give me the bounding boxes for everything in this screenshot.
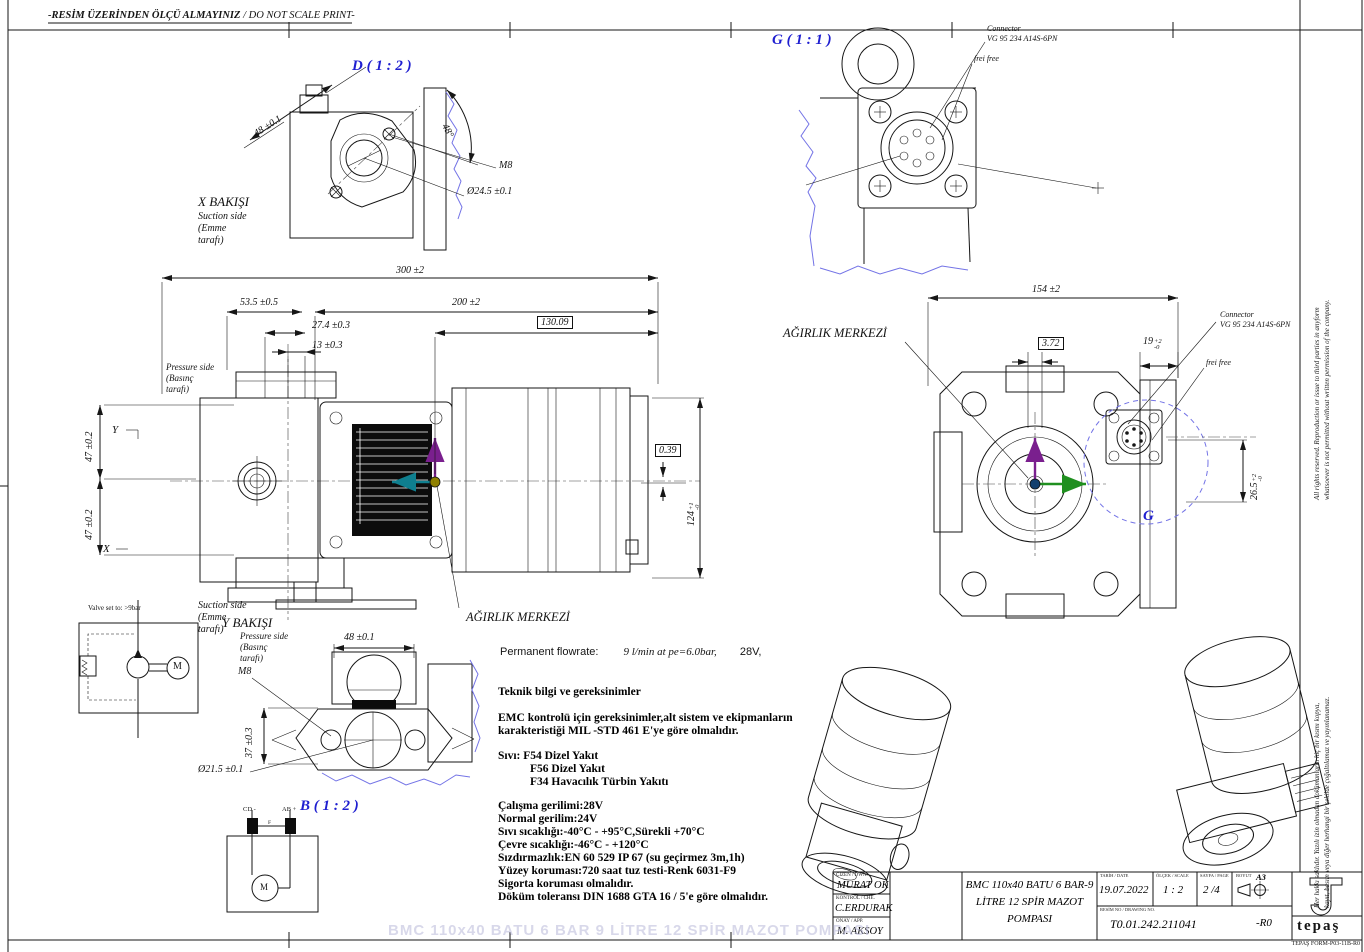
flowrate-voltage: 28V, bbox=[740, 646, 762, 658]
drawing-sheet: -RESİM ÜZERİNDEN ÖLÇÜ ALMAYINIZ / DO NOT… bbox=[0, 0, 1364, 952]
iso-view-left bbox=[786, 657, 957, 907]
date-label: TARİH / DATE bbox=[1100, 873, 1128, 878]
no-scale-note-en: / DO NOT SCALE PRINT- bbox=[240, 10, 354, 21]
drawing-linework bbox=[0, 0, 1364, 952]
drawn-by-label: ÇİZEN / DWN. bbox=[836, 873, 868, 878]
suction-side-1: Suction side bbox=[198, 600, 247, 611]
detail-g-linework bbox=[799, 28, 1104, 274]
spec-line: Sıvı sıcaklığı:-40°C - +95°C,Sürekli +70… bbox=[498, 826, 705, 838]
margin-note-en-1: All rights reserved. Reproduction or iss… bbox=[1313, 307, 1321, 500]
cg-label-front: AĞIRLIK MERKEZİ bbox=[466, 610, 570, 625]
hydraulic-motor-label: M bbox=[173, 661, 182, 672]
connector-label-1: Connector bbox=[1220, 310, 1254, 319]
page-value: 2 /4 bbox=[1203, 884, 1220, 896]
dim-48-y: 48 ±0.1 bbox=[344, 632, 375, 643]
electric-motor-label: M bbox=[260, 882, 268, 892]
cg-label-right: AĞIRLIK MERKEZİ bbox=[783, 326, 887, 341]
detail-ref-g: G bbox=[1143, 508, 1154, 525]
spec-line: Yüzey koruması:720 saat tuz testi-Renk 6… bbox=[498, 865, 736, 877]
axis-y-label: Y bbox=[112, 424, 118, 436]
margin-note-tr-1: Her hakkı saklıdır. Yazılı izin olmadan … bbox=[1313, 703, 1321, 908]
title-block-grid bbox=[833, 872, 1362, 940]
spec-line: Sigorta koruması olmalıdır. bbox=[498, 878, 633, 890]
dim-53: 53.5 ±0.5 bbox=[240, 297, 278, 308]
watermark-text: BMC 110x40 BATU 6 BAR 9 LİTRE 12 SPİR MA… bbox=[388, 922, 870, 939]
revision-value: -R0 bbox=[1256, 917, 1272, 929]
dim-47b: 47 ±0.2 bbox=[84, 510, 95, 541]
dim-47a: 47 ±0.2 bbox=[84, 432, 95, 463]
specs-emc-1: EMC kontrolü için gereksinimler,alt sist… bbox=[498, 712, 793, 724]
size-label: BOYUT bbox=[1236, 873, 1252, 878]
dim-bore-y: Ø21.5 ±0.1 bbox=[198, 764, 243, 775]
drawn-by-value: MURAT OK bbox=[837, 880, 889, 891]
scale-label: ÖLÇEK / SCALE bbox=[1156, 873, 1189, 878]
dim-m8-y: M8 bbox=[238, 666, 251, 677]
form-number: TEPAŞ FORM-P03-11B-R0 bbox=[1202, 941, 1360, 947]
page-label: SAYFA / PAGE bbox=[1200, 873, 1229, 878]
scale-value: 1 : 2 bbox=[1163, 884, 1183, 896]
dim-37: 37 ±0.3 bbox=[244, 728, 255, 759]
margin-note-en-2: whatsoever is not permitted without writ… bbox=[1323, 300, 1331, 500]
date-value: 19.07.2022 bbox=[1099, 884, 1149, 896]
connector-label-g2: VG 95 234 A14S-6PN bbox=[987, 34, 1057, 43]
y-view-sub3: tarafı) bbox=[240, 653, 263, 663]
dim-19: 19+2-0 bbox=[1143, 336, 1162, 351]
checked-by-label: KONTROL / CHE. bbox=[836, 896, 875, 901]
dim-m8-d: M8 bbox=[499, 160, 512, 171]
flowrate-label: Permanent flowrate: bbox=[500, 646, 598, 658]
detail-d-title: D ( 1 : 2 ) bbox=[352, 58, 412, 75]
pressure-side-1: Pressure side bbox=[166, 362, 214, 372]
iso-view-right bbox=[1137, 627, 1337, 873]
frei-free-label-right: frei free bbox=[1206, 358, 1231, 367]
x-view-sub2: (Emme bbox=[198, 223, 226, 234]
no-scale-note: -RESİM ÜZERİNDEN ÖLÇÜ ALMAYINIZ / DO NOT… bbox=[48, 10, 355, 21]
flowrate-value: 9 l/min at pe=6.0bar, bbox=[624, 646, 717, 658]
dim-cg-y: 0.39 bbox=[655, 444, 681, 457]
terminal-neg-label: CD - bbox=[243, 806, 256, 813]
pressure-side-2: (Basınç bbox=[166, 373, 194, 383]
connector-label-g1: Connector bbox=[987, 24, 1021, 33]
pressure-side-3: tarafı) bbox=[166, 384, 189, 394]
spec-line: Çevre sıcaklığı:-46°C - +120°C bbox=[498, 839, 649, 851]
dim-265: 26.5+2-0 bbox=[1249, 474, 1264, 500]
x-view-title: X BAKIŞI bbox=[198, 194, 249, 210]
dim-372: 3.72 bbox=[1038, 337, 1064, 350]
dim-124: 124+1-0 bbox=[686, 502, 701, 526]
spec-line: Normal gerilim:24V bbox=[498, 813, 597, 825]
detail-d-linework bbox=[244, 67, 496, 250]
y-view-linework bbox=[250, 644, 480, 785]
y-view-sub1: Pressure side bbox=[240, 631, 288, 641]
terminal-pos-label: AB + bbox=[282, 806, 296, 813]
no-scale-note-tr: -RESİM ÜZERİNDEN ÖLÇÜ ALMAYINIZ bbox=[48, 10, 240, 21]
fuse-label: F bbox=[268, 820, 271, 826]
specs-fluid-0: Sıvı: F54 Dizel Yakıt bbox=[498, 750, 598, 762]
dim-13: 13 ±0.3 bbox=[312, 340, 343, 351]
dim-300: 300 ±2 bbox=[396, 265, 424, 276]
tepas-logo-text: tepaş bbox=[1297, 918, 1340, 935]
frei-free-label-g: frei free bbox=[974, 54, 999, 63]
drawing-title-2: LİTRE 12 SPİR MAZOT bbox=[962, 896, 1097, 908]
checked-by-value: C.ERDURAK bbox=[835, 903, 892, 914]
spec-line: Sızdırmazlık:EN 60 529 IP 67 (su geçirme… bbox=[498, 852, 745, 864]
sheet-frame bbox=[0, 0, 1362, 952]
x-view-sub1: Suction side bbox=[198, 211, 247, 222]
drawing-title-3: POMPASI bbox=[962, 913, 1097, 925]
detail-g-title: G ( 1 : 1 ) bbox=[772, 32, 832, 49]
suction-side-3: tarafı) bbox=[198, 624, 224, 635]
specs-emc-2: karakteristiği MIL -STD 461 E'ye göre ol… bbox=[498, 725, 739, 737]
specs-fluid-1: F56 Dizel Yakıt bbox=[530, 763, 605, 775]
size-value: A3 bbox=[1256, 872, 1266, 882]
x-view-sub3: tarafı) bbox=[198, 235, 224, 246]
margin-note-tr-2: kayıt, basım veya diğer herhangi bir şek… bbox=[1323, 697, 1331, 908]
y-view-title: Y BAKIŞI bbox=[222, 615, 272, 631]
spec-line: Çalışma gerilimi:28V bbox=[498, 800, 603, 812]
right-view-linework bbox=[905, 298, 1256, 618]
detail-b-title: B ( 1 : 2 ) bbox=[300, 798, 359, 815]
axis-x-label: X bbox=[103, 543, 110, 555]
dim-cg-x: 130.09 bbox=[537, 316, 573, 329]
drawing-no-label: RESİM NO / DRAWING NO. bbox=[1100, 907, 1155, 912]
dim-bore-d: Ø24.5 ±0.1 bbox=[467, 186, 512, 197]
y-view-sub2: (Basınç bbox=[240, 642, 268, 652]
electric-schematic-linework bbox=[227, 810, 318, 912]
dim-154: 154 ±2 bbox=[1032, 284, 1060, 295]
specs-fluid-2: F34 Havacılık Türbin Yakıtı bbox=[530, 776, 668, 788]
specs-heading: Teknik bilgi ve gereksinimler bbox=[498, 686, 641, 698]
connector-label-2: VG 95 234 A14S-6PN bbox=[1220, 320, 1290, 329]
front-view-linework bbox=[100, 278, 704, 620]
drawing-no-value: T0.01.242.211041 bbox=[1110, 917, 1197, 932]
spec-line: Döküm toleransı DIN 1688 GTA 16 / 5'e gö… bbox=[498, 891, 768, 903]
dim-200: 200 ±2 bbox=[452, 297, 480, 308]
drawing-title-1: BMC 110x40 BATU 6 BAR-9 bbox=[962, 879, 1097, 891]
valve-note: Valve set to: >9bar bbox=[88, 604, 141, 612]
dim-27: 27.4 ±0.3 bbox=[312, 320, 350, 331]
flowrate-line: Permanent flowrate: 9 l/min at pe=6.0bar… bbox=[500, 646, 761, 658]
